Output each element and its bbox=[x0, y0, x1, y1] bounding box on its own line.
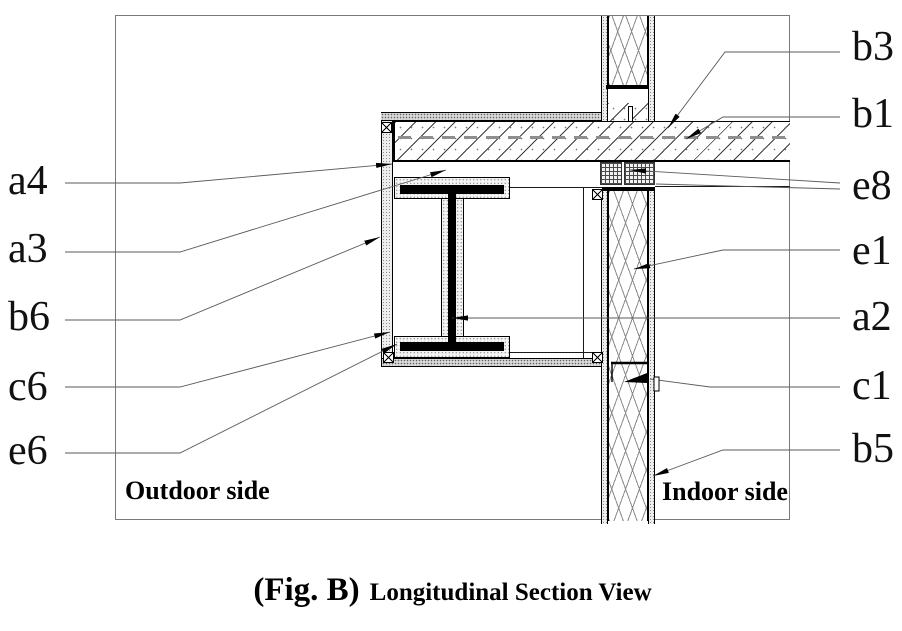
enclosure-right-board-line bbox=[583, 187, 584, 358]
enclosure-bottom-line bbox=[510, 352, 592, 353]
indoor-side-label: Indoor side bbox=[662, 479, 788, 505]
figure-caption-label: (Fig. B) bbox=[253, 572, 359, 608]
label-b3: b3 bbox=[852, 26, 894, 68]
enclosure-bottom-board bbox=[381, 358, 602, 367]
upper-wall-outdoor-board bbox=[601, 16, 608, 121]
label-b5: b5 bbox=[852, 428, 894, 470]
fixing-square-bottom-right bbox=[592, 352, 603, 363]
section-drawing-canvas: a4 a3 b6 c6 e6 b3 b1 e8 e1 a2 c1 b5 Outd… bbox=[0, 0, 902, 631]
enclosure-left-board bbox=[381, 121, 393, 358]
label-b1: b1 bbox=[852, 93, 894, 135]
firestop-sealant-right bbox=[624, 162, 655, 185]
steel-beam-top-flange bbox=[400, 185, 504, 194]
label-a4: a4 bbox=[8, 160, 48, 202]
upper-wall-insulation bbox=[608, 16, 648, 85]
steel-beam-web bbox=[448, 194, 456, 343]
figure-caption: (Fig. B)Longitudinal Section View bbox=[115, 572, 790, 609]
enclosure-top-line bbox=[510, 187, 602, 188]
slab-rebar-line bbox=[398, 136, 785, 139]
steel-beam-bottom-flange bbox=[400, 342, 504, 351]
concrete-floor-slab bbox=[393, 121, 790, 162]
fixing-square-top-left bbox=[381, 122, 392, 133]
label-c6: c6 bbox=[8, 366, 48, 408]
label-e1: e1 bbox=[852, 230, 892, 272]
label-a2: a2 bbox=[852, 296, 892, 338]
upper-wall-indoor-board bbox=[648, 16, 655, 121]
ceiling-line-indoor bbox=[655, 186, 790, 187]
lower-wall-indoor-board bbox=[648, 191, 655, 524]
fixing-square-bottom-left bbox=[383, 352, 394, 363]
label-e8: e8 bbox=[852, 165, 892, 207]
upper-wall-bottom-plate bbox=[606, 85, 650, 89]
figure-caption-title: Longitudinal Section View bbox=[370, 579, 652, 606]
fixing-square-top-right bbox=[592, 189, 603, 200]
label-c1: c1 bbox=[852, 365, 892, 407]
lower-wall-insulation bbox=[608, 191, 648, 521]
firestop-sealant-left bbox=[600, 162, 622, 185]
label-b6: b6 bbox=[8, 296, 50, 338]
floor-topping-strip bbox=[381, 112, 601, 121]
outdoor-side-label: Outdoor side bbox=[125, 478, 270, 504]
label-e6: e6 bbox=[8, 430, 48, 472]
label-a3: a3 bbox=[8, 228, 48, 270]
